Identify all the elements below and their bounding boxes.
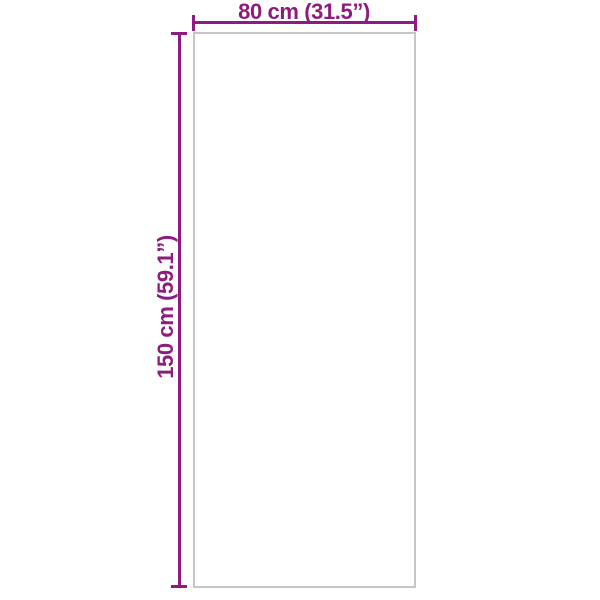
height-dimension-tick-top (171, 32, 187, 35)
width-dimension-label: 80 cm (31.5”) (238, 1, 370, 23)
width-dimension-tick-right (414, 15, 417, 31)
height-dimension-tick-bottom (171, 585, 187, 588)
width-dimension-tick-left (192, 15, 195, 31)
dimension-diagram: 80 cm (31.5”) 150 cm (59.1”) (0, 0, 600, 600)
product-outline-rectangle (193, 32, 416, 588)
height-dimension-line (178, 32, 181, 588)
height-dimension-label: 150 cm (59.1”) (155, 235, 177, 379)
